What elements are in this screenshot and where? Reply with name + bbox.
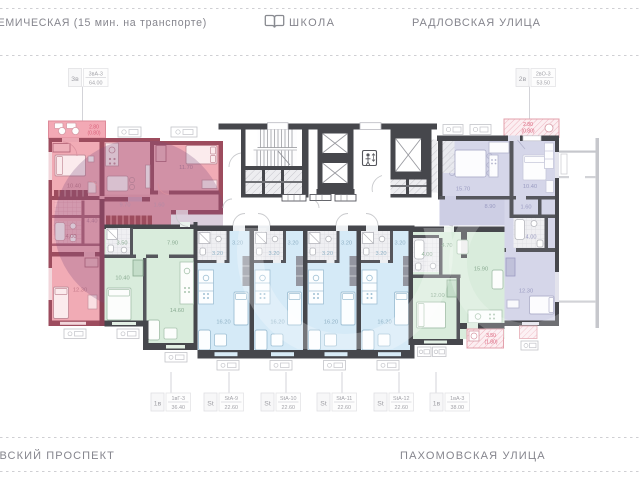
svg-text:3.20: 3.20 [394,241,405,247]
svg-text:2вО-3: 2вО-3 [536,72,551,78]
svg-text:St: St [207,401,214,408]
svg-text:St: St [377,401,384,408]
svg-text:10.40: 10.40 [115,276,129,282]
svg-text:РАДЛОВСКАЯ УЛИЦА: РАДЛОВСКАЯ УЛИЦА [412,17,541,29]
svg-text:(0.80): (0.80) [87,131,100,137]
svg-text:8.90: 8.90 [484,204,495,210]
svg-text:1в: 1в [154,401,162,408]
svg-text:22.60: 22.60 [225,405,239,411]
svg-text:4.00: 4.00 [525,235,536,241]
svg-text:2в: 2в [519,76,527,83]
svg-text:(1.80): (1.80) [484,340,497,346]
svg-text:StА-12: StА-12 [393,396,409,402]
svg-text:АКАДЕМИЧЕСКАЯ (15 мин. на тра: АКАДЕМИЧЕСКАЯ (15 мин. на транспорте) [0,17,207,29]
svg-text:53.50: 53.50 [537,81,551,87]
svg-text:22.60: 22.60 [282,405,296,411]
svg-text:(0.80): (0.80) [521,129,534,135]
svg-text:14.60: 14.60 [170,308,184,314]
svg-text:64.00: 64.00 [89,81,103,87]
svg-text:St: St [264,401,271,408]
svg-text:StА-10: StА-10 [280,396,296,402]
svg-text:15.70: 15.70 [456,187,470,193]
svg-text:2.80: 2.80 [523,122,533,128]
svg-text:16.20: 16.20 [324,320,338,326]
svg-text:ШКОЛА: ШКОЛА [289,17,335,29]
svg-text:НЕВСКИЙ ПРОСПЕКТ: НЕВСКИЙ ПРОСПЕКТ [0,449,115,462]
svg-text:3.20: 3.20 [322,251,333,257]
svg-text:1вА-3: 1вА-3 [450,396,464,402]
svg-text:22.60: 22.60 [338,405,352,411]
svg-text:22.60: 22.60 [395,405,409,411]
svg-text:16.20: 16.20 [216,320,230,326]
svg-text:3.50: 3.50 [116,241,127,247]
svg-text:36.40: 36.40 [172,405,186,411]
svg-text:3.20: 3.20 [268,251,279,257]
svg-text:38.00: 38.00 [451,405,465,411]
svg-text:ПАХОМОВСКАЯ УЛИЦА: ПАХОМОВСКАЯ УЛИЦА [400,450,546,462]
svg-text:3.20: 3.20 [212,251,223,257]
svg-text:10.40: 10.40 [523,184,537,190]
svg-text:7.90: 7.90 [167,241,178,247]
svg-text:3в: 3в [71,76,79,83]
svg-text:StА-11: StА-11 [336,396,352,402]
svg-text:3.20: 3.20 [375,251,386,257]
svg-text:St: St [320,401,327,408]
svg-text:3вА-3: 3вА-3 [89,72,103,78]
svg-text:12.30: 12.30 [519,289,533,295]
svg-text:15.90: 15.90 [474,267,488,273]
svg-text:1в: 1в [433,401,441,408]
svg-text:3.20: 3.20 [341,241,352,247]
svg-text:StА-9: StА-9 [225,396,238,402]
svg-text:1вГ-3: 1вГ-3 [171,396,185,402]
svg-text:1.60: 1.60 [520,205,531,211]
svg-text:3.20: 3.20 [287,241,298,247]
